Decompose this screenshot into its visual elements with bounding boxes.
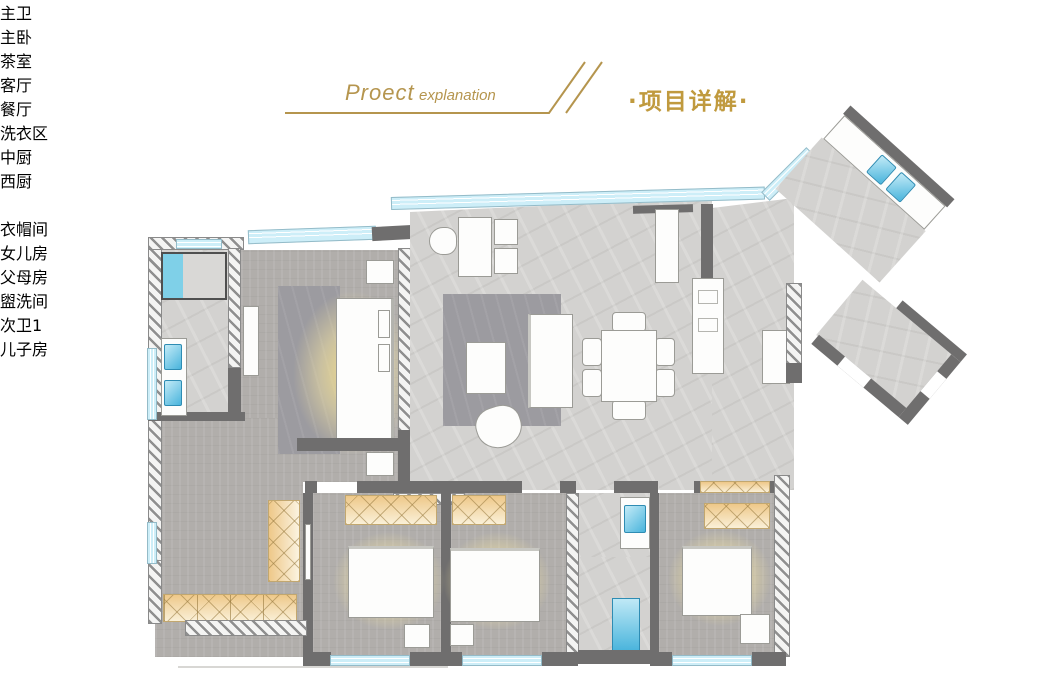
window-son [672, 655, 752, 666]
dining-chair-l1 [582, 338, 602, 366]
wardrobe-cloak-row [163, 594, 297, 622]
wall-master-top-right [372, 225, 415, 241]
sill [410, 652, 462, 666]
room-label-living-room: 客厅 [0, 72, 1054, 96]
shower-bath2 [612, 598, 640, 652]
cabinet-west-kitchen-detail [698, 290, 718, 304]
sill [752, 652, 786, 666]
wall-master-main-divider [398, 248, 412, 432]
wall-west-kitchen-right [786, 283, 802, 365]
tea-stool-2 [494, 248, 518, 274]
bed-daughter [348, 546, 434, 618]
side-table-son [740, 614, 770, 644]
tea-stool-1 [494, 219, 518, 245]
page: Proect explanation ·项目详解· [0, 0, 1054, 700]
pillow-master-2 [378, 344, 390, 372]
sill [303, 652, 331, 666]
window-parents [462, 655, 542, 666]
tea-table [458, 217, 492, 277]
shower-stall [161, 252, 227, 300]
sill [578, 650, 652, 664]
header-title-en-main: Proect [345, 80, 415, 105]
wall-left-lower [148, 560, 162, 624]
flower-centerpiece [617, 354, 641, 378]
room-label-dining-room: 餐厅 [0, 96, 1054, 120]
toilet-bath2-bowl [608, 568, 630, 596]
pillow-master-1 [378, 310, 390, 338]
dryer-machine [679, 258, 701, 280]
washing-machine [679, 236, 701, 258]
cabinet-west-kitchen-detail [698, 318, 718, 332]
baseline [178, 666, 448, 668]
dining-chair-r2 [655, 369, 675, 397]
dining-chair-r1 [655, 338, 675, 366]
header-title-en: Proect explanation [345, 80, 496, 106]
side-table-daughter [404, 624, 430, 648]
window-left-lower [147, 522, 157, 564]
window-left-mid [147, 348, 157, 420]
door-arc-parents [472, 447, 572, 547]
wall-cloak-bottom [185, 620, 307, 636]
sofa [528, 314, 573, 408]
cabinet-cloak-left [163, 424, 183, 488]
side-table-parents [450, 624, 474, 646]
room-label-master-bedroom: 主卧 [0, 24, 1054, 48]
window-master-top [248, 226, 376, 244]
foyer-block [799, 263, 967, 425]
dresser-master [243, 306, 259, 376]
bed-son [682, 546, 752, 616]
wardrobe-son [704, 503, 770, 529]
room-label-laundry: 洗衣区 [0, 120, 1054, 144]
wardrobe-son-top [700, 481, 770, 493]
lamp-icon [541, 287, 563, 309]
cabinet-laundry [655, 209, 679, 283]
nightstand-master-bottom [366, 452, 394, 476]
dining-chair-bottom [612, 400, 646, 420]
sill [650, 652, 672, 666]
wall-son-right [774, 475, 790, 657]
coffee-table [466, 342, 506, 394]
toilet-master-bowl [171, 306, 200, 331]
header-title-cn: ·项目详解· [628, 82, 749, 116]
bed-parents [450, 548, 540, 622]
header-title-en-sub: explanation [419, 87, 496, 104]
lamp-icon [541, 418, 563, 440]
room-label-tea-room: 茶室 [0, 48, 1054, 72]
nightstand-master-top [366, 260, 394, 284]
dining-chair-top [612, 312, 646, 332]
window-shower-top [176, 239, 222, 249]
dining-chair-l2 [582, 369, 602, 397]
chinese-kitchen-block [776, 106, 955, 283]
door-arc-daughter [267, 447, 367, 547]
tea-chair [429, 227, 457, 255]
door-arc-son [608, 445, 708, 545]
window-daughter [330, 655, 410, 666]
sill [542, 652, 578, 666]
room-label-master-bath: 主卫 [0, 0, 1054, 24]
